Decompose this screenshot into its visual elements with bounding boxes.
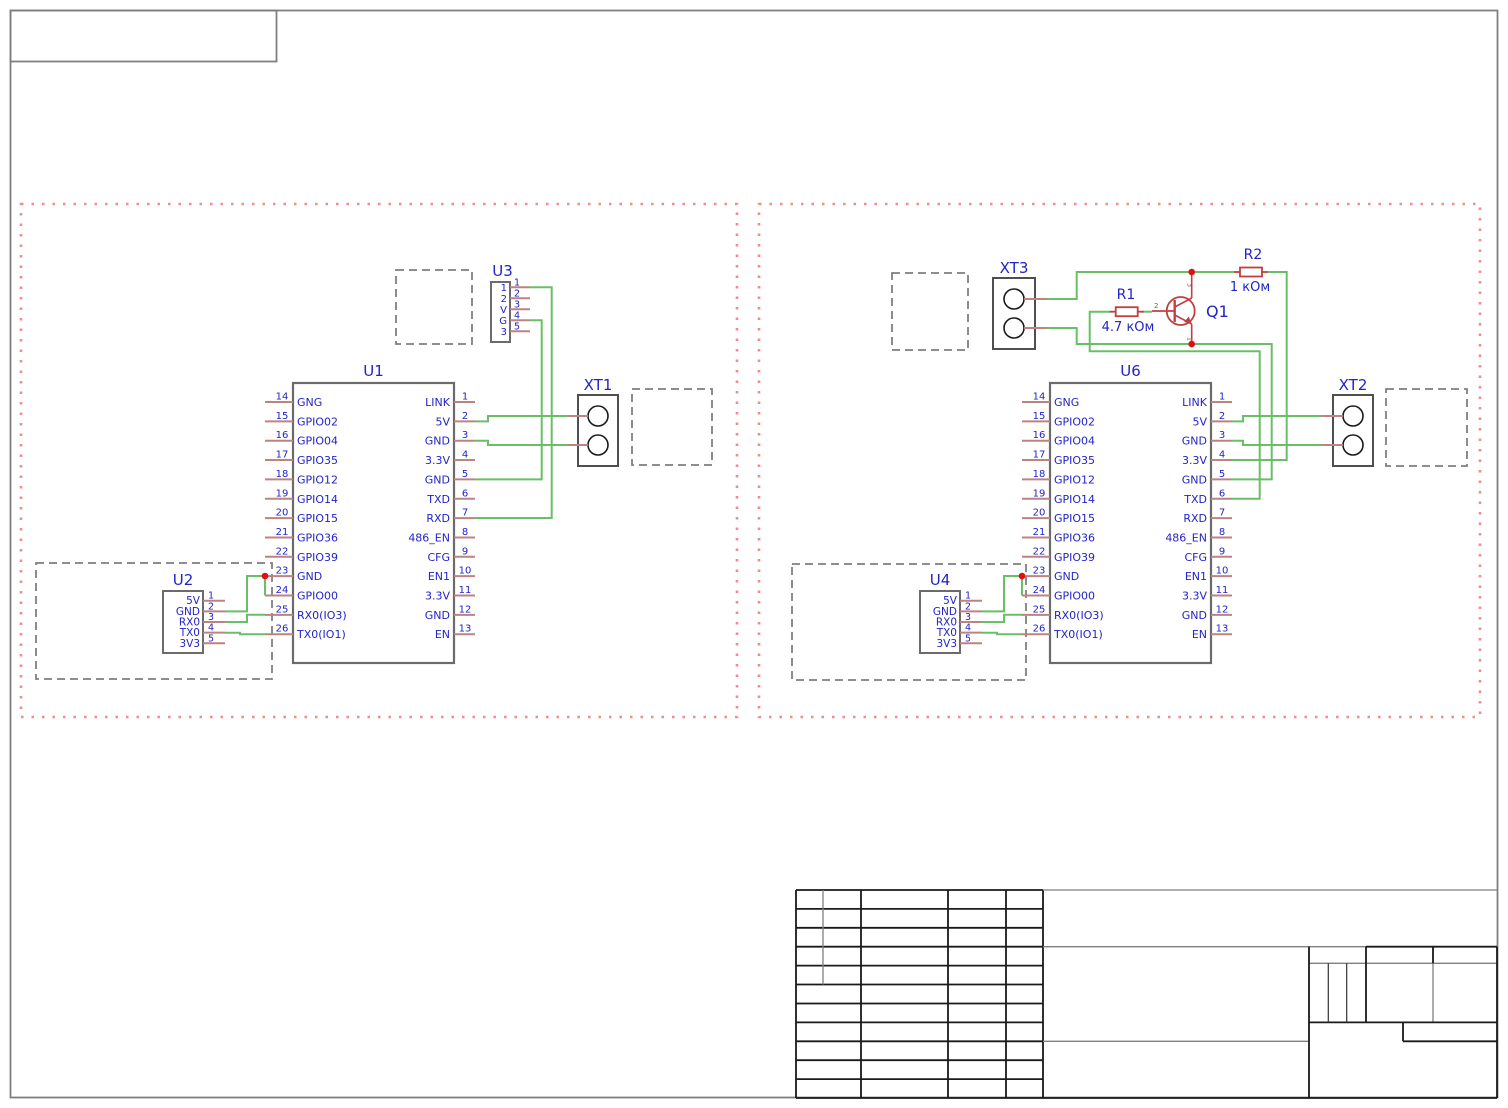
wire[interactable] bbox=[982, 633, 1022, 635]
pin-name: 5V bbox=[1192, 415, 1207, 428]
transistor-collector-line bbox=[1175, 298, 1192, 307]
resistor-body[interactable] bbox=[1116, 307, 1138, 316]
pin-name: GPIO12 bbox=[297, 473, 338, 486]
pin-name: GPIO35 bbox=[297, 454, 338, 467]
pin-name: GND bbox=[1182, 435, 1207, 448]
pin-number: 6 bbox=[462, 488, 468, 499]
pin-name: GPIO02 bbox=[297, 415, 338, 428]
pin-number: 20 bbox=[1033, 508, 1046, 519]
pin-number: 5 bbox=[208, 633, 214, 644]
pin-number: 4 bbox=[514, 310, 520, 321]
terminal-hole[interactable] bbox=[588, 406, 608, 426]
component-value: 4.7 кОм bbox=[1102, 320, 1155, 335]
wire[interactable] bbox=[225, 633, 265, 635]
pin-number: 26 bbox=[276, 624, 289, 635]
title-block bbox=[796, 890, 1497, 1098]
pin-number: 3 bbox=[965, 612, 971, 623]
pin-name: V bbox=[500, 305, 507, 316]
pin-number: 21 bbox=[1033, 527, 1046, 538]
ic-U4[interactable]: U415V2GND3RX04TX053V3 bbox=[920, 571, 982, 653]
pin-number: 7 bbox=[1219, 508, 1225, 519]
placeholder-box[interactable] bbox=[892, 273, 968, 350]
component-ref: XT3 bbox=[1000, 259, 1029, 277]
connector-XT3[interactable]: XT3 bbox=[993, 259, 1047, 349]
pin-name: GND bbox=[297, 570, 322, 583]
pin-name: GPIO36 bbox=[1054, 531, 1095, 544]
pin-number: 4 bbox=[208, 623, 214, 634]
pin-number: 10 bbox=[459, 566, 472, 577]
pin-name: GPIO04 bbox=[1054, 435, 1095, 448]
pin-name: LINK bbox=[1182, 396, 1208, 409]
pin-name: EN bbox=[1192, 628, 1207, 641]
pin-number: 13 bbox=[459, 624, 472, 635]
pin-name: EN1 bbox=[1185, 570, 1207, 583]
revision-table bbox=[796, 890, 1497, 1098]
terminal-hole[interactable] bbox=[1004, 289, 1024, 309]
transistor-Q1[interactable]: 231Q1 bbox=[1152, 272, 1229, 344]
pin-name: RXD bbox=[1183, 512, 1207, 525]
pin-name: GND bbox=[425, 609, 450, 622]
ic-U1[interactable]: U114GNG15GPIO0216GPIO0417GPIO3518GPIO121… bbox=[265, 362, 475, 663]
wire[interactable] bbox=[225, 576, 265, 611]
pin-number: 18 bbox=[1033, 469, 1046, 480]
pin-number: 18 bbox=[276, 469, 289, 480]
placeholder-box[interactable] bbox=[1386, 389, 1467, 466]
title-block-small-cells bbox=[1328, 963, 1346, 1022]
junction-dot bbox=[262, 573, 269, 580]
wire[interactable] bbox=[475, 416, 567, 421]
pin-name: EN bbox=[435, 628, 450, 641]
pin-name: TX0(IO1) bbox=[296, 628, 346, 641]
pin-number: 19 bbox=[276, 488, 289, 499]
header-U3[interactable]: U311223V4G53 bbox=[491, 262, 530, 342]
pin-name: 486_EN bbox=[1165, 531, 1207, 544]
pin-name: GND bbox=[1182, 609, 1207, 622]
pin-number: 16 bbox=[276, 430, 289, 441]
module-left: U114GNG15GPIO0216GPIO0417GPIO3518GPIO121… bbox=[21, 204, 737, 717]
pin-name: 2 bbox=[501, 294, 507, 305]
pin-name: TX0(IO1) bbox=[1053, 628, 1103, 641]
pin-number: 1 bbox=[965, 591, 971, 602]
pin-name: GPIO02 bbox=[1054, 415, 1095, 428]
pin-number: 10 bbox=[1216, 566, 1229, 577]
pin-name: 3 bbox=[501, 327, 507, 338]
pin-number: 9 bbox=[462, 546, 468, 557]
junction-dot bbox=[1019, 573, 1026, 580]
pin-name: GND bbox=[1182, 473, 1207, 486]
pin-name: 3.3V bbox=[425, 590, 450, 603]
placeholder-box[interactable] bbox=[632, 389, 712, 465]
pin-number: 25 bbox=[276, 604, 289, 615]
pin-number: 23 bbox=[276, 566, 289, 577]
pin-number: 7 bbox=[462, 508, 468, 519]
pin-name: 3V3 bbox=[179, 638, 200, 650]
pin-name: 3V3 bbox=[936, 638, 957, 650]
pin-name: GPIO39 bbox=[297, 551, 338, 564]
pin-number: 13 bbox=[1216, 624, 1229, 635]
component-ref: XT2 bbox=[1339, 376, 1368, 394]
pin-number: 9 bbox=[1219, 546, 1225, 557]
pin-number: 14 bbox=[1033, 392, 1046, 403]
wire[interactable] bbox=[982, 615, 1022, 622]
pin-number: 22 bbox=[1033, 546, 1046, 557]
pin-name: RX0(IO3) bbox=[1054, 609, 1104, 622]
schematic-canvas: U114GNG15GPIO0216GPIO0417GPIO3518GPIO121… bbox=[0, 0, 1508, 1108]
pin-number: 5 bbox=[514, 321, 520, 332]
pin-number: 3 bbox=[1186, 283, 1194, 287]
pin-name: CFG bbox=[1184, 551, 1207, 564]
connector-XT2[interactable]: XT2 bbox=[1322, 376, 1373, 466]
pin-number: 1 bbox=[462, 392, 468, 403]
pin-number: 8 bbox=[462, 527, 468, 538]
component-ref: R1 bbox=[1117, 287, 1136, 303]
resistor-R2[interactable]: R21 кОм bbox=[1230, 247, 1270, 295]
pin-number: 17 bbox=[276, 450, 289, 461]
pin-number: 24 bbox=[276, 585, 289, 596]
pin-name: GPIO00 bbox=[297, 590, 338, 603]
pin-name: GPIO14 bbox=[297, 493, 338, 506]
pin-number: 2 bbox=[965, 601, 971, 612]
ic-U2[interactable]: U215V2GND3RX04TX053V3 bbox=[163, 571, 225, 653]
pin-number: 8 bbox=[1219, 527, 1225, 538]
pin-number: 2 bbox=[514, 288, 520, 299]
pin-name: TXD bbox=[426, 493, 450, 506]
pin-number: 23 bbox=[1033, 566, 1046, 577]
pin-name: GND bbox=[1054, 570, 1079, 583]
pin-number: 1 bbox=[1186, 337, 1194, 341]
wire[interactable] bbox=[475, 320, 542, 479]
pin-name: LINK bbox=[425, 396, 451, 409]
schematic-page: U114GNG15GPIO0216GPIO0417GPIO3518GPIO121… bbox=[0, 0, 1508, 1108]
pin-name: TXD bbox=[1183, 493, 1207, 506]
pin-name: G bbox=[499, 316, 507, 327]
pin-number: 12 bbox=[1216, 604, 1229, 615]
pin-name: GPIO14 bbox=[1054, 493, 1095, 506]
pin-name: GPIO12 bbox=[1054, 473, 1095, 486]
pin-number: 5 bbox=[462, 469, 468, 480]
pin-name: 486_EN bbox=[408, 531, 450, 544]
pin-number: 22 bbox=[276, 546, 289, 557]
wire[interactable] bbox=[1232, 441, 1322, 445]
pin-number: 3 bbox=[514, 299, 520, 310]
component-ref: XT1 bbox=[584, 376, 613, 394]
pin-number: 4 bbox=[1219, 450, 1225, 461]
component-ref: R2 bbox=[1244, 247, 1263, 263]
pin-number: 3 bbox=[208, 612, 214, 623]
pin-name: GPIO15 bbox=[1054, 512, 1095, 525]
pin-number: 11 bbox=[459, 585, 472, 596]
pin-name: RXD bbox=[426, 512, 450, 525]
pin-name: 3.3V bbox=[425, 454, 450, 467]
component-ref: U6 bbox=[1120, 362, 1141, 380]
pin-name: GPIO00 bbox=[1054, 590, 1095, 603]
pin-name: 3.3V bbox=[1182, 590, 1207, 603]
pin-number: 16 bbox=[1033, 430, 1046, 441]
pin-name: EN1 bbox=[428, 570, 450, 583]
resistor-body[interactable] bbox=[1240, 268, 1262, 277]
component-ref: Q1 bbox=[1206, 302, 1229, 321]
pin-number: 21 bbox=[276, 527, 289, 538]
pin-number: 2 bbox=[208, 601, 214, 612]
pin-name: GND bbox=[425, 473, 450, 486]
pin-name: GPIO15 bbox=[297, 512, 338, 525]
pin-number: 4 bbox=[462, 450, 468, 461]
pin-name: CFG bbox=[427, 551, 450, 564]
pin-number: 2 bbox=[1219, 411, 1225, 422]
component-ref: U2 bbox=[173, 571, 194, 589]
pin-name: GPIO04 bbox=[297, 435, 338, 448]
pin-number: 24 bbox=[1033, 585, 1046, 596]
terminal-hole[interactable] bbox=[1004, 318, 1024, 338]
connector-XT1[interactable]: XT1 bbox=[567, 376, 618, 466]
pin-name: GNG bbox=[1054, 396, 1079, 409]
pin-name: GPIO39 bbox=[1054, 551, 1095, 564]
pin-number: 26 bbox=[1033, 624, 1046, 635]
pin-number: 1 bbox=[1219, 392, 1225, 403]
junction-dot bbox=[1188, 341, 1195, 348]
ic-U6[interactable]: U614GNG15GPIO0216GPIO0417GPIO3518GPIO121… bbox=[1022, 362, 1232, 663]
component-ref: U4 bbox=[930, 571, 951, 589]
pin-name: 5V bbox=[435, 415, 450, 428]
pin-number: 3 bbox=[462, 430, 468, 441]
wire[interactable] bbox=[225, 615, 265, 622]
pin-number: 6 bbox=[1219, 488, 1225, 499]
terminal-hole[interactable] bbox=[1343, 406, 1363, 426]
pin-number: 17 bbox=[1033, 450, 1046, 461]
pin-number: 15 bbox=[276, 411, 289, 422]
junction-dot bbox=[1188, 269, 1195, 276]
component-value: 1 кОм bbox=[1230, 280, 1270, 295]
pin-name: 1 bbox=[501, 283, 507, 294]
pin-number: 2 bbox=[462, 411, 468, 422]
pin-number: 25 bbox=[1033, 604, 1046, 615]
pin-number: 3 bbox=[1219, 430, 1225, 441]
pin-number: 15 bbox=[1033, 411, 1046, 422]
pin-number: 12 bbox=[459, 604, 472, 615]
top-left-stamp-box bbox=[11, 11, 277, 62]
pin-name: GNG bbox=[297, 396, 322, 409]
component-ref: U3 bbox=[492, 262, 513, 280]
pin-name: GPIO36 bbox=[297, 531, 338, 544]
pin-number: 2 bbox=[1154, 302, 1158, 310]
terminal-hole[interactable] bbox=[588, 435, 608, 455]
pin-number: 5 bbox=[1219, 469, 1225, 480]
pin-name: RX0(IO3) bbox=[297, 609, 347, 622]
pin-number: 20 bbox=[276, 508, 289, 519]
pin-number: 14 bbox=[276, 392, 289, 403]
terminal-hole[interactable] bbox=[1343, 435, 1363, 455]
module-right: U614GNG15GPIO0216GPIO0417GPIO3518GPIO121… bbox=[759, 204, 1480, 717]
pin-number: 1 bbox=[514, 277, 520, 288]
pin-number: 11 bbox=[1216, 585, 1229, 596]
wire[interactable] bbox=[475, 441, 567, 445]
pin-name: GND bbox=[425, 435, 450, 448]
component-ref: U1 bbox=[363, 362, 384, 380]
pin-name: GPIO35 bbox=[1054, 454, 1095, 467]
pin-name: 3.3V bbox=[1182, 454, 1207, 467]
wire[interactable] bbox=[1232, 416, 1322, 421]
page-border bbox=[11, 11, 1498, 1098]
title-block-subtable bbox=[1309, 947, 1497, 1098]
pin-number: 4 bbox=[965, 623, 971, 634]
pin-number: 1 bbox=[208, 591, 214, 602]
pin-number: 19 bbox=[1033, 488, 1046, 499]
placeholder-box[interactable] bbox=[396, 270, 472, 344]
wire[interactable] bbox=[982, 576, 1022, 611]
pin-number: 5 bbox=[965, 633, 971, 644]
